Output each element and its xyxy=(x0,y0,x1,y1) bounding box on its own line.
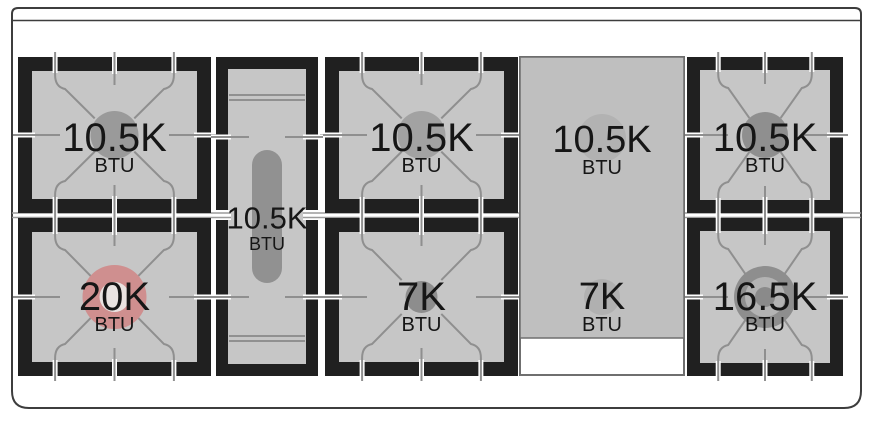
burner-bottom-right: 16.5KBTU xyxy=(682,213,848,381)
burner-top-left: 10.5KBTU xyxy=(13,52,216,218)
burner-bottom-middle: 7KBTU xyxy=(320,213,523,381)
burner-btu-label: 10.5K xyxy=(62,116,167,160)
burner-btu-label: 10.5K xyxy=(713,116,818,160)
burner-btu-label: 16.5K xyxy=(713,275,818,319)
row-divider-lines xyxy=(12,213,861,218)
burner-unit-label: BTU xyxy=(402,314,442,336)
burner-btu-label: 10.5K xyxy=(369,116,474,160)
burner-btu-label: 20K xyxy=(79,275,150,319)
burner-bottom-left: 20KBTU xyxy=(13,213,216,381)
griddle-section: 10.5KBTU7KBTU xyxy=(520,57,684,375)
burner-btu-label: 10.5K xyxy=(552,119,651,161)
burner-center-oval: 10.5KBTU xyxy=(211,57,323,376)
burner-unit-label: BTU xyxy=(582,314,622,336)
burner-unit-label: BTU xyxy=(745,155,785,177)
burner-top-right: 10.5KBTU xyxy=(682,52,848,218)
burner-btu-label: 10.5K xyxy=(226,201,307,236)
cooktop-diagram: 10.5KBTU20KBTU10.5KBTU7KBTU10.5KBTU16.5K… xyxy=(0,0,872,424)
burner-unit-label: BTU xyxy=(402,155,442,177)
burner-unit-label: BTU xyxy=(95,155,135,177)
burner-unit-label: BTU xyxy=(582,157,622,179)
burner-unit-label: BTU xyxy=(745,314,785,336)
burner-unit-label: BTU xyxy=(95,314,135,336)
burner-unit-label: BTU xyxy=(249,234,285,254)
burner-top-middle: 10.5KBTU xyxy=(320,52,523,218)
burner-btu-label: 7K xyxy=(397,275,446,319)
burner-btu-label: 7K xyxy=(579,276,625,318)
cooktop-svg: 10.5KBTU20KBTU10.5KBTU7KBTU10.5KBTU16.5K… xyxy=(0,0,872,424)
